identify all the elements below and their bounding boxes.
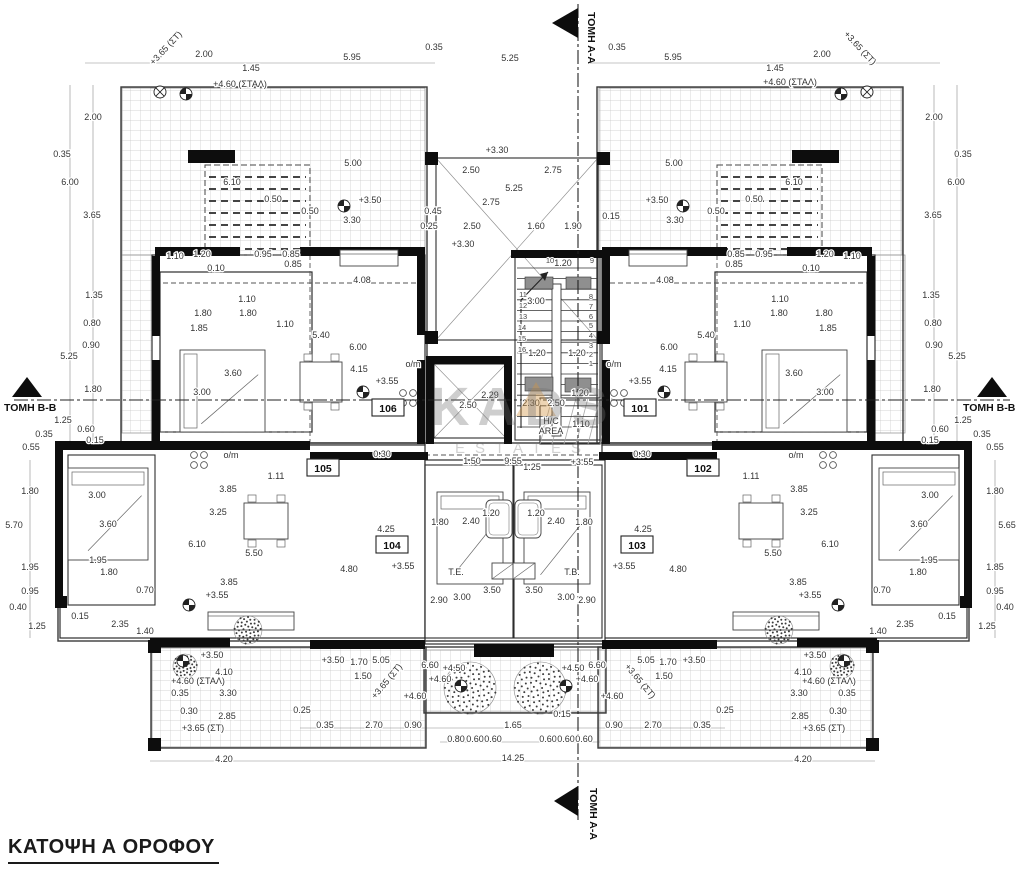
dim-label: +3.50 <box>322 655 345 665</box>
dim-label: 5.40 <box>697 330 715 340</box>
stove-burner <box>830 462 837 469</box>
dim-label: 2.35 <box>111 619 129 629</box>
dining-table <box>739 503 783 539</box>
plant-dot <box>483 694 485 696</box>
dim-label: 2.00 <box>195 49 213 59</box>
dim-label: 1.35 <box>922 290 940 300</box>
dim-label: 0.55 <box>22 442 40 452</box>
plant-dot <box>488 681 490 683</box>
plant-dot <box>447 695 449 697</box>
plant-dot <box>486 699 488 701</box>
wall-segment <box>797 638 877 647</box>
plant-dot <box>467 712 469 714</box>
plant-dot <box>780 632 782 634</box>
apartment-number: 102 <box>694 463 712 475</box>
sofa <box>733 612 819 630</box>
dim-label: 0.30 <box>180 706 198 716</box>
plant-dot <box>766 632 768 634</box>
dim-label: 2.40 <box>462 516 480 526</box>
dim-label: 0.50 <box>264 194 282 204</box>
chair <box>277 495 285 502</box>
plant-dot <box>547 690 549 692</box>
dim-label: 1.80 <box>21 486 39 496</box>
wall-segment <box>960 596 972 608</box>
plant-dot <box>472 691 474 693</box>
dim-label: +4.50 <box>443 663 466 673</box>
bathtub <box>486 500 512 538</box>
dim-label: 1.40 <box>869 626 887 636</box>
dim-label: 1.20 <box>527 508 545 518</box>
plant-dot <box>554 676 556 678</box>
plant-dot <box>247 626 249 628</box>
plant-dot <box>788 630 790 632</box>
wall-segment <box>152 256 160 336</box>
plant-dot <box>255 627 257 629</box>
plant-dot <box>785 622 787 624</box>
dim-label: 0.45 <box>424 206 442 216</box>
plant-dot <box>472 673 474 675</box>
plant-dot <box>244 624 246 626</box>
dim-label: 2.85 <box>218 711 236 721</box>
section-triangle-icon <box>12 377 42 397</box>
plant-dot <box>460 677 462 679</box>
dim-label: 1.80 <box>100 567 118 577</box>
dim-label: 2.90 <box>430 595 448 605</box>
dim-label: 3.85 <box>219 484 237 494</box>
dim-label: 0.50 <box>745 194 763 204</box>
stair-step-number: 12 <box>519 301 527 310</box>
plant-dot <box>194 670 196 672</box>
dim-label: 4.08 <box>353 275 371 285</box>
section-triangle-icon <box>554 786 578 816</box>
dim-label: +3.30 <box>452 239 475 249</box>
apartment-number: 101 <box>631 403 649 415</box>
plant-dot <box>467 676 469 678</box>
wall-segment <box>55 596 67 608</box>
plant-dot <box>780 636 782 638</box>
plant-dot <box>246 634 248 636</box>
chair <box>248 540 256 547</box>
plant-dot <box>247 639 249 641</box>
dim-label: 0.95 <box>986 586 1004 596</box>
plant-dot <box>843 668 845 670</box>
dim-label: 0.35 <box>973 429 991 439</box>
plant-dot <box>237 626 239 628</box>
plant-dot <box>254 619 256 621</box>
wall-segment <box>597 331 610 344</box>
dim-label: +3.55 <box>571 457 594 467</box>
plant-dot <box>558 681 560 683</box>
dim-label: 0.85 <box>727 249 745 259</box>
dim-label: 2.35 <box>896 619 914 629</box>
dim-label: 0.15 <box>86 435 104 445</box>
chair <box>304 403 312 410</box>
dim-label: 5.50 <box>764 548 782 558</box>
dim-label: 1.25 <box>523 462 541 472</box>
dim-label: 5.00 <box>665 158 683 168</box>
plant-dot <box>548 695 550 697</box>
dim-label: 1.45 <box>766 63 784 73</box>
dim-label: 1.95 <box>21 562 39 572</box>
plant-dot <box>542 673 544 675</box>
plant-dot <box>537 676 539 678</box>
plant-dot <box>788 624 790 626</box>
dim-label: 1.80 <box>986 486 1004 496</box>
dim-label: 0.35 <box>693 720 711 730</box>
dim-label: 2.50 <box>462 165 480 175</box>
dim-label: 1.80 <box>923 384 941 394</box>
apartment-number: 103 <box>628 540 646 552</box>
plant-dot <box>469 682 471 684</box>
plant-dot <box>178 667 180 669</box>
dim-label: 9.55 <box>504 456 522 466</box>
dim-label: 0.90 <box>605 720 623 730</box>
plant-dot <box>478 673 480 675</box>
sofa <box>629 250 687 266</box>
plant-dot <box>470 709 472 711</box>
dim-label: 2.50 <box>547 398 565 408</box>
dim-label: 3.00 <box>88 490 106 500</box>
plant-dot <box>839 667 841 669</box>
dim-label: 6.00 <box>947 177 965 187</box>
dim-label: 0.35 <box>35 429 53 439</box>
dim-label: 1.35 <box>85 290 103 300</box>
stair-step-number: 3 <box>589 341 593 350</box>
stove-burner <box>621 390 628 397</box>
dim-label: 0.15 <box>553 709 571 719</box>
dim-label: 2.00 <box>813 49 831 59</box>
plant-dot <box>242 636 244 638</box>
dim-label: 1.25 <box>978 621 996 631</box>
dim-label: 1.40 <box>136 626 154 636</box>
stair-step-number: 16 <box>518 345 526 354</box>
plant-dot <box>778 626 780 628</box>
plant-dot <box>768 621 770 623</box>
plant-dot <box>483 689 485 691</box>
dim-label: 0.85 <box>282 249 300 259</box>
stair-step-number: 11 <box>519 290 527 299</box>
sofa <box>208 612 294 630</box>
plant-dot <box>527 688 529 690</box>
dim-label: 3.25 <box>209 507 227 517</box>
dim-label: 0.35 <box>608 42 626 52</box>
plant-dot <box>488 692 490 694</box>
plant-dot <box>463 701 465 703</box>
stair-step-number: 7 <box>589 302 593 311</box>
dim-label: 3.65 <box>83 210 101 220</box>
dim-label: +3.65 (ΣΤ) <box>803 723 845 733</box>
plant-dot <box>173 668 175 670</box>
plant-dot <box>480 666 482 668</box>
plant-dot <box>785 635 787 637</box>
dim-label: 0.85 <box>725 259 743 269</box>
plant-dot <box>253 631 255 633</box>
chair <box>689 354 697 361</box>
plant-dot <box>552 705 554 707</box>
dim-label: 1.95 <box>89 555 107 565</box>
stove-burner <box>611 390 618 397</box>
plant-dot <box>254 635 256 637</box>
dim-label: 3.25 <box>800 507 818 517</box>
plant-dot <box>476 700 478 702</box>
chair <box>331 354 339 361</box>
plant-dot <box>561 696 563 698</box>
plant-dot <box>176 665 178 667</box>
plant-dot <box>483 671 485 673</box>
plant-dot <box>780 641 782 643</box>
plant-dot <box>778 616 780 618</box>
plant-dot <box>476 669 478 671</box>
dim-label: 1.10 <box>276 319 294 329</box>
dim-label: 0.15 <box>602 211 620 221</box>
stove-burner <box>830 452 837 459</box>
plant-dot <box>541 687 543 689</box>
wall-segment <box>867 256 875 336</box>
dim-label: +3.65 (ΣΤ) <box>842 29 878 67</box>
plant-dot <box>539 682 541 684</box>
wall-segment <box>866 738 879 751</box>
dim-label: 5.25 <box>60 351 78 361</box>
plant-dot <box>249 636 251 638</box>
plant-dot <box>477 705 479 707</box>
plant-dot <box>535 680 537 682</box>
plant-dot <box>234 628 236 630</box>
dim-label: 2.75 <box>482 197 500 207</box>
plant-dot <box>176 670 178 672</box>
chair <box>277 540 285 547</box>
plant-dot <box>252 638 254 640</box>
dim-label: 6.10 <box>821 539 839 549</box>
dim-label: 5.05 <box>372 655 390 665</box>
stove-burner <box>201 462 208 469</box>
stair-step-number: 13 <box>519 312 527 321</box>
dim-label: +3.30 <box>486 145 509 155</box>
plant-dot <box>256 639 258 641</box>
plant-dot <box>546 700 548 702</box>
plant-dot <box>550 685 552 687</box>
dim-label: +3.55 <box>206 590 229 600</box>
plant-dot <box>525 683 527 685</box>
plant-dot <box>780 619 782 621</box>
plant-dot <box>526 677 528 679</box>
plant-dot <box>528 695 530 697</box>
plant-dot <box>850 661 852 663</box>
plant-dot <box>251 626 253 628</box>
plant-dot <box>833 665 835 667</box>
apartment-number: 104 <box>383 540 401 552</box>
dim-label: 6.60 <box>421 660 439 670</box>
plant-dot <box>444 687 446 689</box>
dim-label: 3.60 <box>99 519 117 529</box>
dim-label: 1.80 <box>815 308 833 318</box>
plant-dot <box>472 704 474 706</box>
dim-label: 1.50 <box>463 456 481 466</box>
dim-label: +3.50 <box>359 195 382 205</box>
plant-dot <box>770 635 772 637</box>
dim-label: 0.40 <box>996 602 1014 612</box>
dim-label: 0.35 <box>425 42 443 52</box>
section-triangle-icon <box>552 8 578 38</box>
plant-dot <box>558 670 560 672</box>
dim-label: 1.20 <box>482 508 500 518</box>
sofa <box>340 250 398 266</box>
plant-dot <box>242 628 244 630</box>
dim-label: 1.10 <box>238 294 256 304</box>
plant-dot <box>784 631 786 633</box>
dim-label: 6.10 <box>188 539 206 549</box>
dim-label: +4.60 (ΣΤΑΛ) <box>763 77 817 87</box>
dim-label: 0.40 <box>9 602 27 612</box>
dim-label: 2.00 <box>84 112 102 122</box>
stair-step-number: 9 <box>590 256 594 265</box>
wall-segment <box>602 360 610 444</box>
plant-dot <box>772 632 774 634</box>
plant-dot <box>491 696 493 698</box>
wall-segment <box>602 640 717 649</box>
plant-dot <box>789 621 791 623</box>
dim-label: 1.11 <box>743 471 760 481</box>
dim-label: 1.20 <box>554 258 572 268</box>
dim-label: 5.50 <box>245 548 263 558</box>
stove-burner <box>611 400 618 407</box>
plant-dot <box>773 628 775 630</box>
plant-dot <box>773 636 775 638</box>
dim-label: 3.85 <box>790 484 808 494</box>
dim-label: 2.90 <box>578 595 596 605</box>
plant-dot <box>785 619 787 621</box>
dim-label: 3.00 <box>193 387 211 397</box>
plant-dot <box>235 632 237 634</box>
dim-label: +3.55 <box>613 561 636 571</box>
dim-label: +3.50 <box>683 655 706 665</box>
plant-dot <box>478 678 480 680</box>
plant-dot <box>769 629 771 631</box>
dim-label: 5.65 <box>998 520 1016 530</box>
plant-dot <box>467 662 469 664</box>
stair-step-number: 1 <box>589 359 593 368</box>
plant-dot <box>527 700 529 702</box>
stair-step-number: 6 <box>589 312 593 321</box>
wall-segment <box>425 331 438 344</box>
dim-label: 1.85 <box>819 323 837 333</box>
chair <box>772 495 780 502</box>
plant-dot <box>837 671 839 673</box>
dim-label: 4.20 <box>794 754 812 764</box>
plant-dot <box>548 678 550 680</box>
dim-label: 0.60 <box>484 734 502 744</box>
dim-label: 0.50 <box>707 206 725 216</box>
section-label: ΤΟΜΗ Α-Α <box>585 12 597 64</box>
dim-label: 0.35 <box>53 149 71 159</box>
plant-dot <box>542 691 544 693</box>
wall-segment <box>425 152 438 165</box>
dim-label: +3.50 <box>201 650 224 660</box>
plant-dot <box>778 639 780 641</box>
plant-dot <box>850 666 852 668</box>
stair-landing <box>525 277 553 289</box>
plant-dot <box>175 658 177 660</box>
plant-dot <box>472 665 474 667</box>
wall-segment <box>866 640 879 653</box>
dim-label: 0.95 <box>755 249 773 259</box>
plant-dot <box>771 617 773 619</box>
stair-step-number: 4 <box>589 331 593 340</box>
dim-label: 2.00 <box>925 112 943 122</box>
floor-plan-drawing: 2.001.455.950.355.250.355.951.452.00+3.6… <box>0 0 1024 869</box>
dim-label: 2.50 <box>459 400 477 410</box>
plant-dot <box>559 676 561 678</box>
wall-segment <box>792 150 839 163</box>
plant-dot <box>477 690 479 692</box>
dim-label: 6.10 <box>785 177 803 187</box>
dim-label: 1.80 <box>239 308 257 318</box>
dim-label: 1.50 <box>655 671 673 681</box>
plant-dot <box>487 704 489 706</box>
stove-burner <box>410 390 417 397</box>
dim-label: 1.10 <box>733 319 751 329</box>
section-label: ΤΟΜΗ Β-Β <box>4 402 57 414</box>
plant-dot <box>533 701 535 703</box>
plant-dot <box>556 686 558 688</box>
dim-label: 1.25 <box>954 415 972 425</box>
plant-dot <box>774 618 776 620</box>
plant-dot <box>542 665 544 667</box>
plant-dot <box>180 671 182 673</box>
dim-label: 0.80 <box>924 318 942 328</box>
dim-label: 0.10 <box>802 263 820 273</box>
dim-label: 3.60 <box>785 368 803 378</box>
wall-segment <box>148 738 161 751</box>
plant-dot <box>254 622 256 624</box>
wall-segment <box>417 255 425 335</box>
plant-dot <box>535 667 537 669</box>
plant-dot <box>529 705 531 707</box>
plant-dot <box>480 685 482 687</box>
plant-dot <box>777 634 779 636</box>
dim-label: 6.00 <box>660 342 678 352</box>
plant-dot <box>556 699 558 701</box>
dim-label: +3.55 <box>392 561 415 571</box>
plant-dot <box>518 690 520 692</box>
plant-dot <box>238 629 240 631</box>
dim-label: 1.20 <box>528 348 546 358</box>
plant-dot <box>186 668 188 670</box>
plant-dot <box>782 626 784 628</box>
plant-dot <box>447 701 449 703</box>
plant-dot <box>249 632 251 634</box>
tile-area <box>599 88 902 255</box>
plant-dot <box>851 670 853 672</box>
plant-dot <box>488 670 490 672</box>
dim-label: 3.30 <box>343 215 361 225</box>
chair <box>716 403 724 410</box>
plant-dot <box>557 704 559 706</box>
plant-dot <box>521 678 523 680</box>
dim-label: 0.35 <box>316 720 334 730</box>
plant-dot <box>833 670 835 672</box>
dim-label: 1.80 <box>909 567 927 577</box>
plant-dot <box>547 705 549 707</box>
plant-dot <box>463 696 465 698</box>
dim-label: 1.60 <box>527 221 545 231</box>
plant-dot <box>243 639 245 641</box>
plant-dot <box>524 706 526 708</box>
dim-label: 3.50 <box>483 585 501 595</box>
dim-label: 1.45 <box>242 63 260 73</box>
plant-dot <box>853 664 855 666</box>
dim-label: 1.80 <box>575 517 593 527</box>
dim-label: 4.25 <box>377 524 395 534</box>
